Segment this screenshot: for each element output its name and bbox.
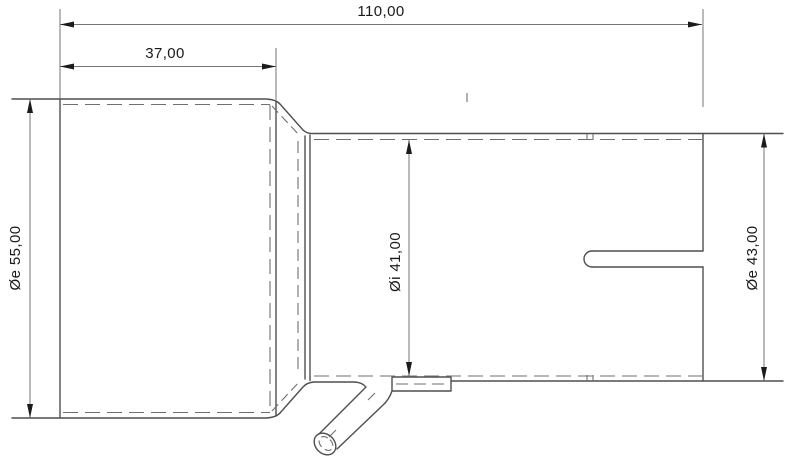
dim-arrow-37-right: [262, 64, 276, 70]
dim-arrow-41-top: [406, 140, 412, 154]
hidden-lines: [63, 93, 702, 437]
dim-label-110: 110,00: [357, 3, 404, 20]
dimensions: 110,00 37,00 Øe 55,00 Øi 41,00 Øe 43,00: [7, 3, 767, 418]
dim-label-37: 37,00: [145, 45, 185, 62]
dim-arrow-43-bottom: [761, 367, 767, 381]
stub-hidden-dash-2: [329, 430, 336, 437]
dimension-bore-inner-diameter: Øi 41,00: [387, 140, 412, 376]
dim-arrow-43-top: [761, 134, 767, 148]
reducer-drawing-canvas: 110,00 37,00 Øe 55,00 Øi 41,00 Øe 43,00: [0, 0, 800, 469]
dim-arrow-37-left: [60, 64, 74, 70]
dim-arrow-55-top: [27, 99, 33, 113]
lower-profile-line: [12, 382, 366, 434]
dim-arrow-55-bottom: [27, 404, 33, 418]
drain-stub-far-edge: [337, 391, 392, 449]
dim-label-41: Øi 41,00: [387, 232, 404, 292]
dim-label-43: Øe 43,00: [744, 226, 761, 291]
dim-arrow-110-right: [688, 22, 702, 28]
dim-arrow-41-bottom: [406, 362, 412, 376]
dimension-large-section-length: 37,00: [60, 45, 276, 100]
technical-drawing-page: 110,00 37,00 Øe 55,00 Øi 41,00 Øe 43,00: [0, 0, 800, 469]
slot-rounded-end: [584, 251, 592, 267]
dim-label-55: Øe 55,00: [7, 226, 24, 291]
upper-profile-line: [12, 99, 783, 134]
drain-stub-end-cap: [310, 429, 340, 459]
dimension-large-outer-diameter: Øe 55,00: [7, 99, 33, 418]
drain-stub-end-bore: [316, 434, 335, 453]
stub-hidden-dash-1: [368, 393, 375, 400]
dimension-small-outer-diameter: Øe 43,00: [744, 134, 767, 382]
dim-arrow-110-left: [60, 22, 74, 28]
